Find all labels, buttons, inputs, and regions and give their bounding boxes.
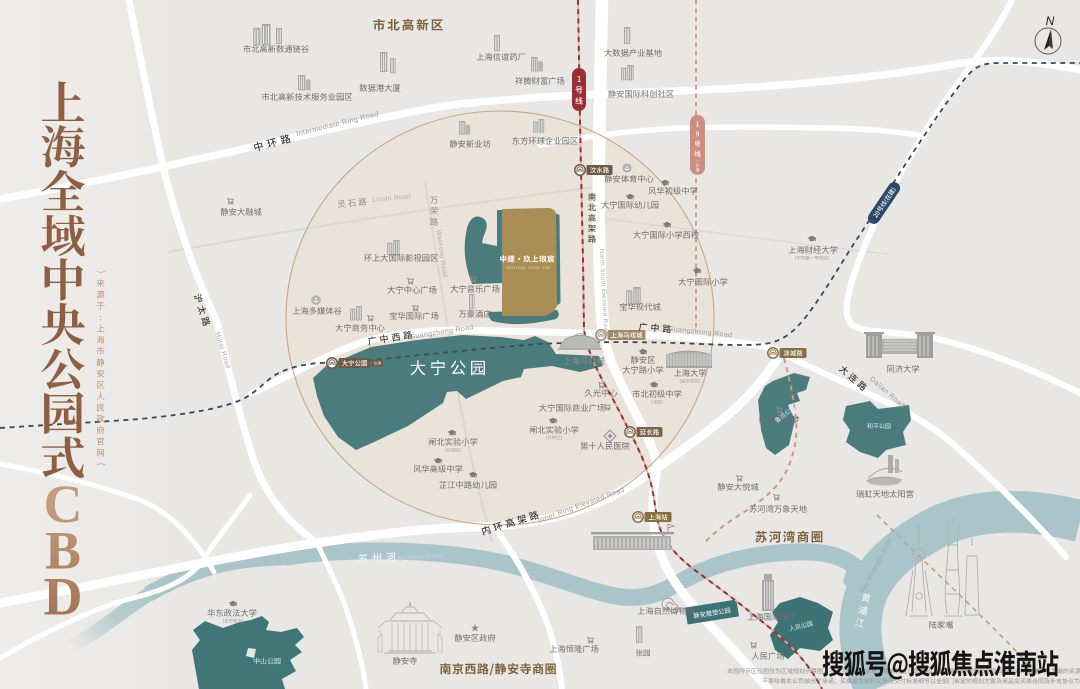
svg-text:N: N xyxy=(1046,14,1055,28)
svg-text:D: D xyxy=(44,567,83,627)
svg-text:CENTRAL PARK 199: CENTRAL PARK 199 xyxy=(506,266,550,270)
